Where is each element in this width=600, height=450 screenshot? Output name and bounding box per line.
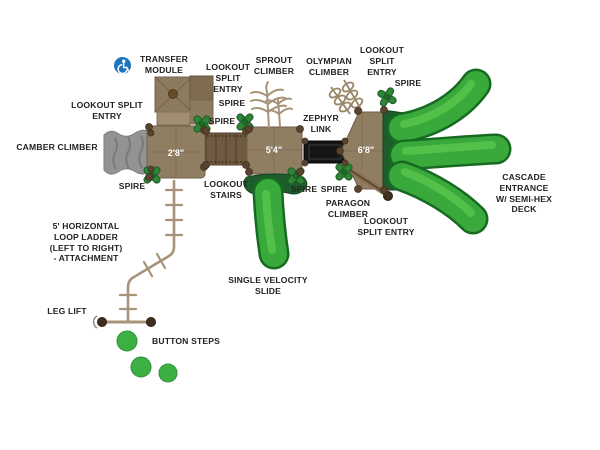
plan-graphics: 2'8" 5'4" 6'8" — [0, 0, 600, 450]
loop-ladder-graphic — [120, 181, 182, 322]
accessibility-icon — [114, 57, 131, 74]
sprout-climber-graphic — [251, 82, 292, 128]
camber-climber-graphic — [104, 130, 151, 174]
deck-2-8-height: 2'8" — [168, 148, 184, 158]
playground-plan-diagram: 2'8" 5'4" 6'8" TRANSFER MODULE LOOKOUT S… — [0, 0, 600, 450]
cascade-slides-graphic — [402, 84, 496, 219]
button-steps-graphic — [117, 331, 177, 382]
deck-5-4-height: 5'4" — [266, 145, 282, 155]
deck-6-8-height: 6'8" — [358, 145, 374, 155]
lookout-stairs-graphic — [206, 133, 247, 165]
leg-lift-graphic — [94, 316, 156, 328]
single-velocity-slide-graphic — [244, 174, 307, 254]
